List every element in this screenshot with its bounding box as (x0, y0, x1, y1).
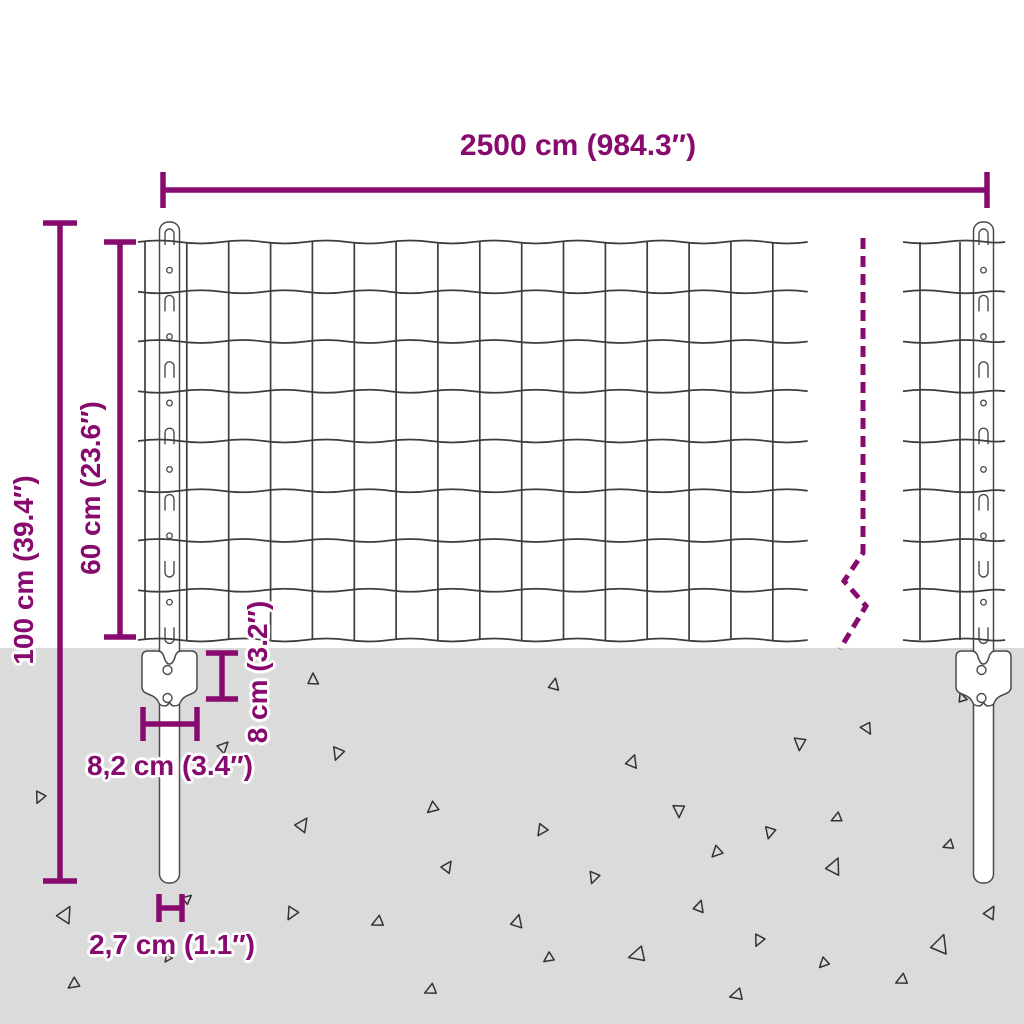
left-fence-post (160, 222, 180, 883)
ground (0, 648, 1024, 1024)
mesh-height-dimension-label: 60 cm (23.6″) (75, 401, 107, 575)
left-mesh-panel (138, 241, 808, 642)
panel-break-line (840, 238, 866, 649)
mesh-height-dimension-line (104, 242, 136, 637)
plate-height-dimension-label: 8 cm (3.2″) (242, 601, 274, 744)
width-dimension-label: 2500 cm (984.3″) (460, 129, 696, 163)
right-fence-post (974, 222, 994, 883)
total-height-dimension-label: 100 cm (39.4″) (8, 475, 40, 664)
width-dimension-line (163, 172, 987, 208)
fence-dimension-diagram: { "diagram": { "title": "fence-panel-wit… (0, 0, 1024, 1024)
post-width-dimension-label: 2,7 cm (1.1″) (89, 929, 255, 961)
plate-width-dimension-label: 8,2 cm (3.4″) (87, 750, 253, 782)
